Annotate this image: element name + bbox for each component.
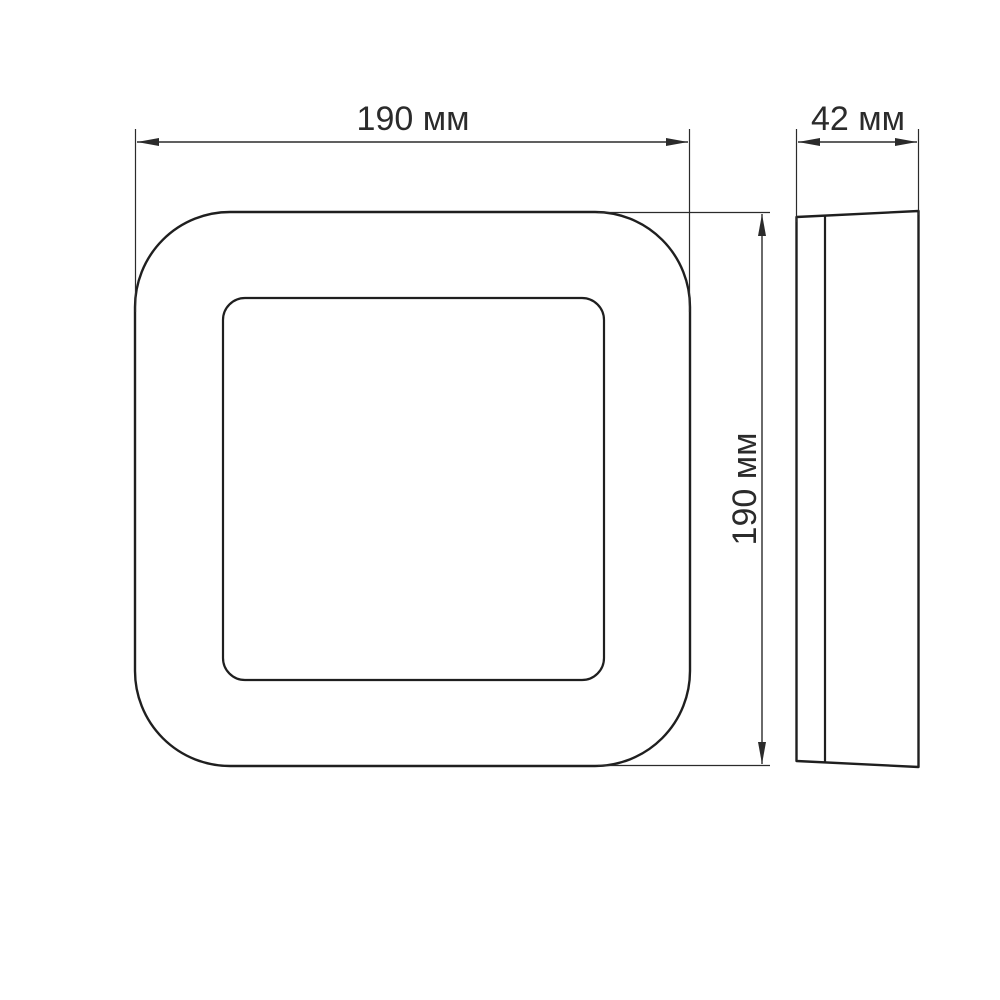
front-view xyxy=(135,212,690,766)
depth-dimension-label: 42 мм xyxy=(811,100,905,138)
width-dimension: 190 мм xyxy=(136,100,690,312)
side-view-outline xyxy=(797,211,919,767)
technical-drawing-canvas: 190 мм 190 мм 42 мм xyxy=(0,0,1000,1000)
side-view xyxy=(797,211,919,767)
front-view-outline xyxy=(135,212,690,766)
front-view-diffuser-panel xyxy=(223,298,604,680)
depth-dimension: 42 мм xyxy=(797,100,919,222)
height-dimension: 190 мм xyxy=(598,213,770,766)
width-dimension-label: 190 мм xyxy=(357,100,470,138)
luminaire-dimension-drawing: 190 мм 190 мм 42 мм xyxy=(0,0,1000,1000)
height-dimension-label: 190 мм xyxy=(726,433,764,546)
